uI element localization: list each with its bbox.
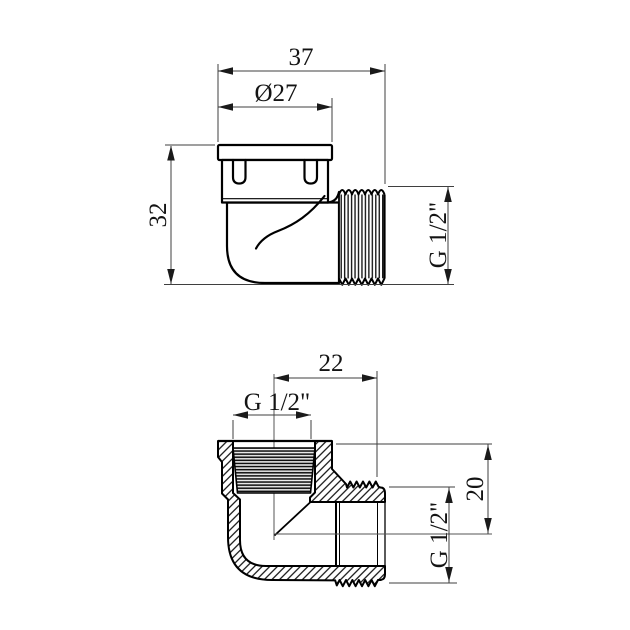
elbow-fitting-external <box>218 145 385 285</box>
dim-male-thread-label: G 1/2" <box>426 502 453 568</box>
section-view: 22 G 1/2" 20 G 1/2" <box>218 350 492 586</box>
dim-cap-diameter-label: Ø27 <box>254 80 297 107</box>
dim-axis-height-label: 20 <box>462 477 489 502</box>
arrowhead <box>444 269 452 284</box>
inner-corner-diagonal <box>275 503 311 536</box>
cap-body <box>222 160 328 203</box>
arrowhead <box>167 146 175 161</box>
right-top-wall-section <box>310 441 385 502</box>
cap-flange <box>218 145 332 160</box>
drawing-canvas: 37 Ø27 32 G 1/2" <box>0 0 630 630</box>
arrowhead <box>370 67 385 75</box>
arrowhead <box>445 488 453 503</box>
elbow-body <box>227 203 339 284</box>
arrowhead <box>484 518 492 533</box>
male-thread-external <box>339 188 385 285</box>
dim-overall-width-label: 37 <box>289 44 314 71</box>
female-thread-section <box>233 448 315 493</box>
dim-male-thread-label: G 1/2" <box>425 202 452 268</box>
neck-curve <box>328 192 339 203</box>
technical-drawing: 37 Ø27 32 G 1/2" <box>0 0 630 630</box>
dim-overall-height-label: 32 <box>145 203 172 228</box>
elbow-fitting-section <box>218 441 385 586</box>
thread-lines <box>340 193 385 279</box>
arrowhead <box>445 567 453 582</box>
arrowhead <box>317 103 332 111</box>
arrowhead <box>167 269 175 284</box>
arrowhead <box>362 374 377 382</box>
external-view: 37 Ø27 32 G 1/2" <box>145 44 454 285</box>
dim-port-offset-label: 22 <box>319 350 344 377</box>
arrowhead <box>218 67 233 75</box>
dim-female-thread-label: G 1/2" <box>244 389 310 416</box>
thread-crest-bottom <box>339 278 385 285</box>
arrowhead <box>484 445 492 460</box>
arrowhead <box>444 187 452 202</box>
arrowhead <box>218 103 233 111</box>
arrowhead <box>274 374 289 382</box>
